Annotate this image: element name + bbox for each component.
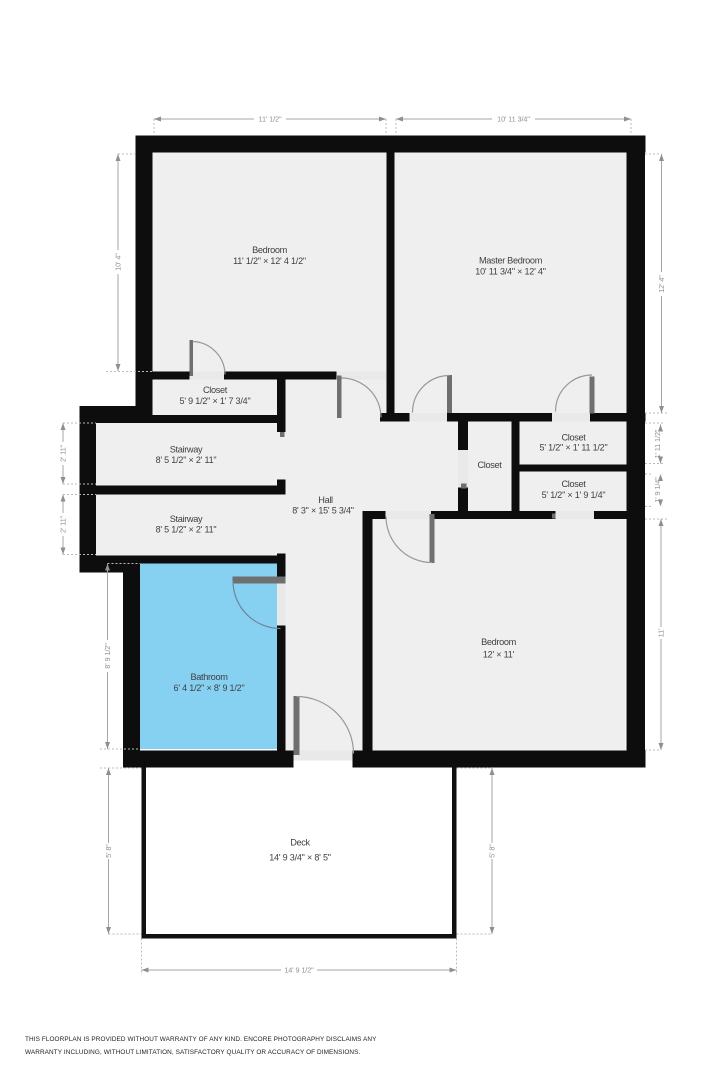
svg-text:12' × 11': 12' × 11'	[483, 650, 515, 660]
svg-text:Bedroom: Bedroom	[252, 245, 288, 255]
svg-text:5' 9 1/2" × 1' 7 3/4": 5' 9 1/2" × 1' 7 3/4"	[180, 396, 251, 406]
svg-text:Master Bedroom: Master Bedroom	[479, 256, 543, 266]
svg-text:Bathroom: Bathroom	[190, 672, 228, 682]
svg-text:14' 9 1/2": 14' 9 1/2"	[284, 966, 314, 975]
svg-text:Stairway: Stairway	[170, 514, 203, 524]
svg-text:14' 9 3/4" × 8' 5": 14' 9 3/4" × 8' 5"	[269, 853, 331, 863]
svg-text:11' 1/2": 11' 1/2"	[259, 115, 282, 124]
svg-text:5' 8": 5' 8"	[104, 844, 113, 858]
svg-text:8' 9 1/2": 8' 9 1/2"	[103, 643, 112, 669]
svg-text:Closet: Closet	[562, 479, 587, 489]
svg-text:2' 11": 2' 11"	[58, 444, 67, 462]
svg-text:5' 8": 5' 8"	[487, 844, 496, 858]
svg-text:6' 4 1/2" × 8' 9 1/2": 6' 4 1/2" × 8' 9 1/2"	[174, 683, 245, 693]
svg-text:1' 11 1/2": 1' 11 1/2"	[653, 429, 662, 458]
svg-text:8' 5 1/2" × 2' 11": 8' 5 1/2" × 2' 11"	[156, 455, 217, 465]
svg-text:Stairway: Stairway	[170, 445, 203, 455]
svg-text:THIS FLOORPLAN IS PROVIDED WIT: THIS FLOORPLAN IS PROVIDED WITHOUT WARRA…	[25, 1036, 377, 1043]
svg-text:Closet: Closet	[478, 460, 503, 470]
svg-text:8' 5 1/2" × 2' 11": 8' 5 1/2" × 2' 11"	[156, 525, 217, 535]
svg-text:2' 11": 2' 11"	[58, 515, 67, 533]
svg-text:Bedroom: Bedroom	[481, 637, 517, 647]
svg-text:5' 1/2" × 1' 11 1/2": 5' 1/2" × 1' 11 1/2"	[540, 443, 608, 453]
svg-text:10' 11 3/4" × 12' 4": 10' 11 3/4" × 12' 4"	[475, 267, 545, 277]
svg-text:8' 3" × 15' 5 3/4": 8' 3" × 15' 5 3/4"	[292, 506, 354, 516]
svg-text:11': 11'	[656, 628, 665, 637]
svg-text:Hall: Hall	[318, 495, 333, 505]
svg-text:12' 4": 12' 4"	[657, 275, 666, 293]
svg-text:10' 4": 10' 4"	[113, 253, 122, 271]
svg-text:10' 11 3/4": 10' 11 3/4"	[497, 115, 530, 124]
svg-text:11' 1/2" × 12' 4 1/2": 11' 1/2" × 12' 4 1/2"	[233, 256, 306, 266]
svg-text:Deck: Deck	[290, 838, 310, 848]
svg-text:WARRANTY INCLUDING, WITHOUT LI: WARRANTY INCLUDING, WITHOUT LIMITATION, …	[25, 1049, 360, 1056]
svg-text:Closet: Closet	[562, 433, 587, 443]
svg-text:5' 1/2" × 1' 9 1/4": 5' 1/2" × 1' 9 1/4"	[542, 490, 606, 500]
svg-text:Closet: Closet	[203, 385, 228, 395]
